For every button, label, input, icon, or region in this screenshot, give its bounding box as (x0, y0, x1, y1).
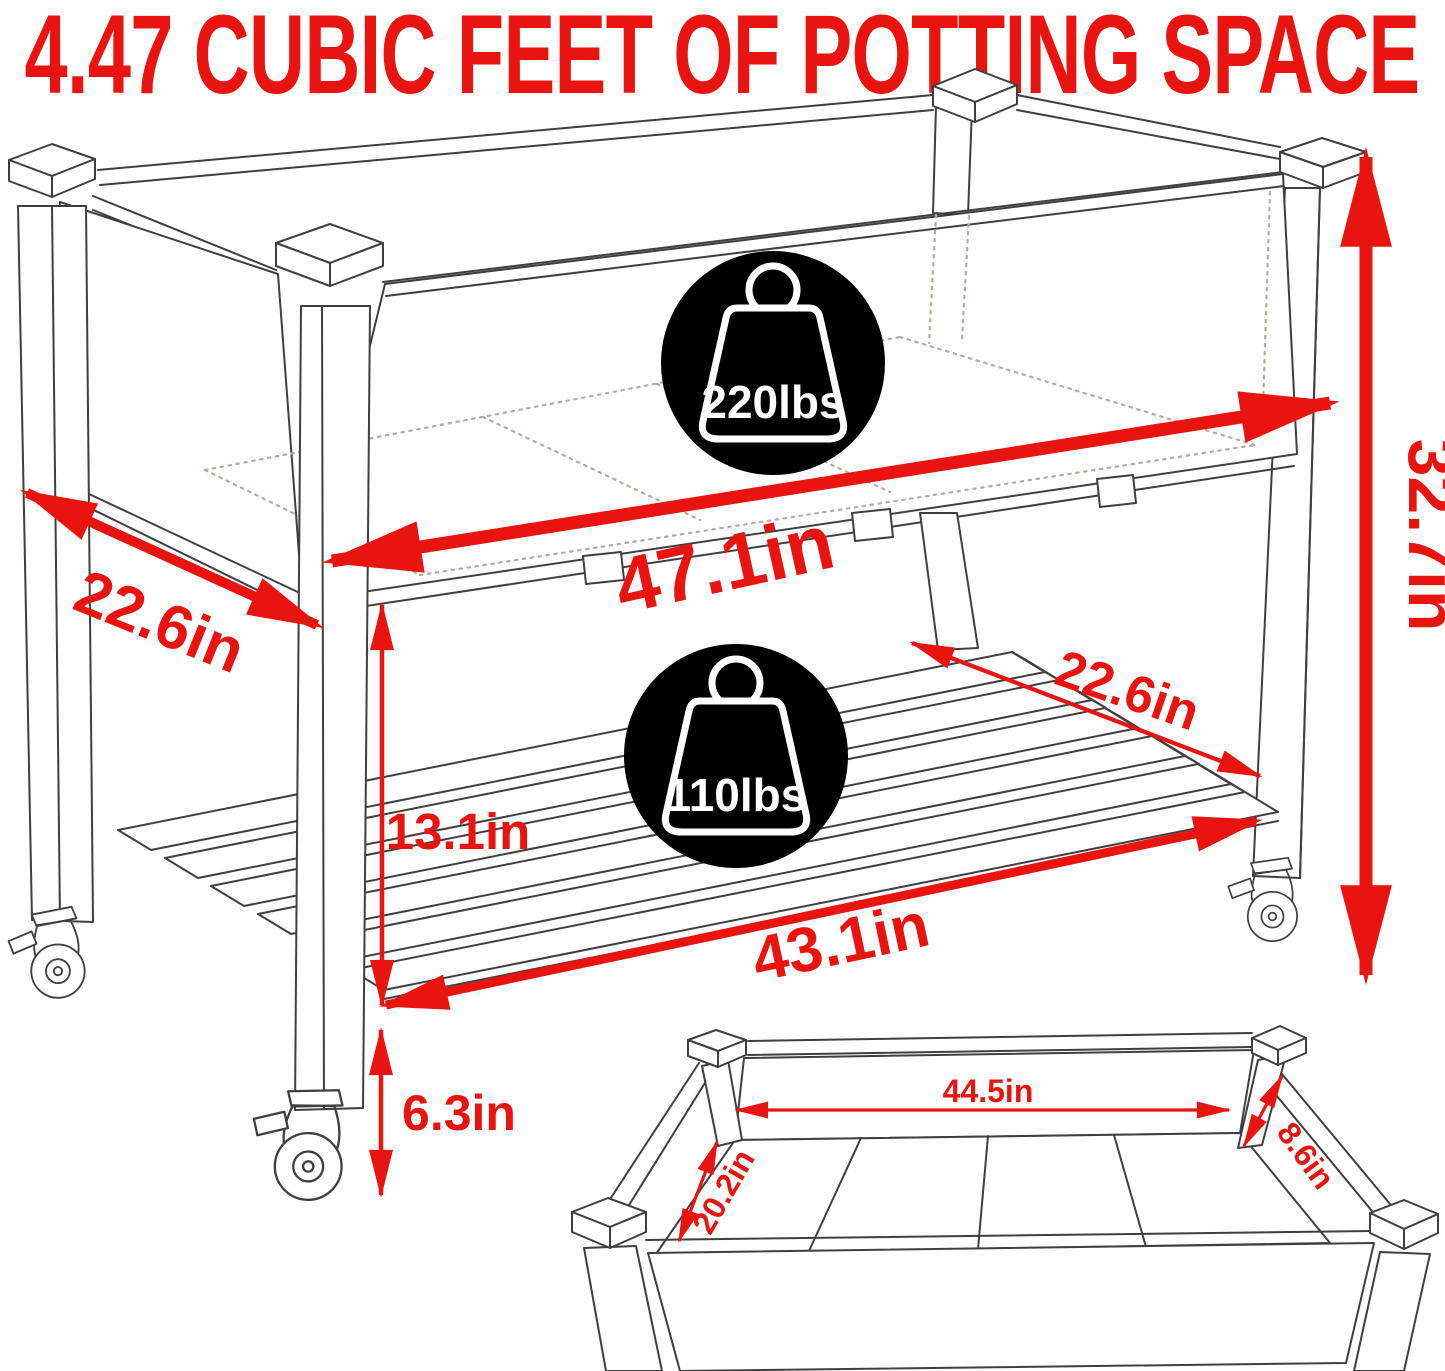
cart-post-back-right (933, 69, 1017, 215)
bed-depth-label: 22.6in (65, 557, 254, 687)
shelf-clearance-label: 13.1in (386, 803, 531, 860)
diagram-canvas: 4.47 CUBIC FEET OF POTTING SPACE (0, 0, 1445, 1371)
cart-post-back-left (9, 144, 95, 922)
upper-capacity-label: 220lbs (701, 376, 844, 428)
weight-badge-lower: 110lbs (624, 644, 848, 868)
weight-icon (661, 251, 885, 475)
caster-wheel-front-left (249, 1084, 347, 1202)
dimension-overall-height: 32.7in (1366, 157, 1445, 975)
weight-badge-upper: 220lbs (661, 251, 885, 475)
page-title: 4.47 CUBIC FEET OF POTTING SPACE (25, 0, 1420, 117)
weight-icon (624, 644, 848, 868)
cart-post-back-right-lower (920, 513, 978, 650)
overall-height-label: 32.7in (1394, 439, 1445, 632)
ground-clearance-label: 6.3in (402, 1085, 516, 1141)
dimension-ground-clearance: 6.3in (381, 1030, 516, 1195)
product-dimension-diagram: 4.47 CUBIC FEET OF POTTING SPACE (0, 0, 1445, 1371)
insert-post-front-right (1354, 1200, 1438, 1371)
lower-capacity-label: 110lbs (666, 769, 807, 821)
insert-post-back-left (688, 1030, 746, 1146)
insert-post-front-left (572, 1198, 662, 1371)
insert-front-wall (646, 1231, 1374, 1371)
insert-length-label: 44.5in (943, 1073, 1034, 1109)
